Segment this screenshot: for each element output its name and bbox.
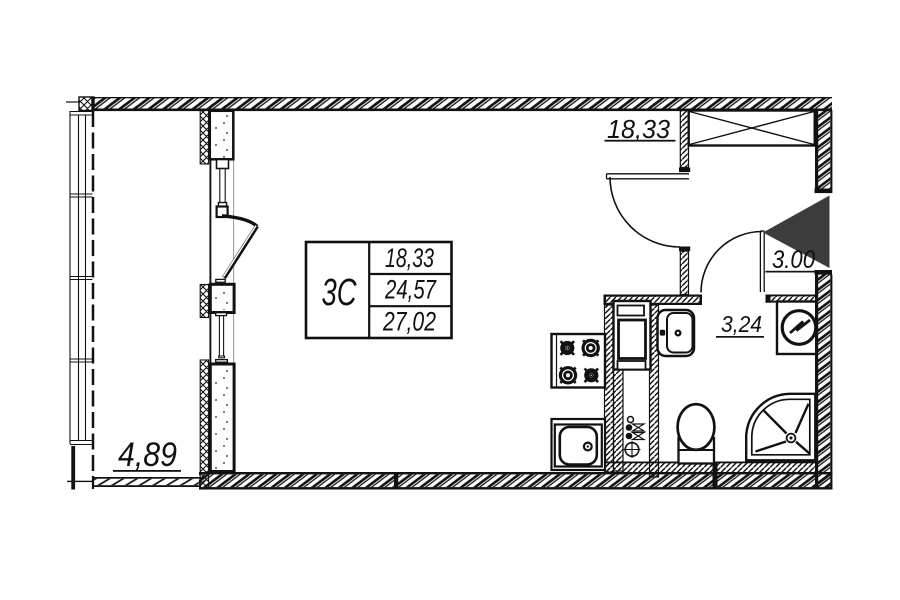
svg-text:4,89: 4,89 — [118, 436, 177, 474]
svg-text:24,57: 24,57 — [384, 275, 436, 305]
svg-text:3.00: 3.00 — [772, 246, 815, 274]
svg-text:3С: 3С — [322, 272, 357, 314]
svg-text:3,24: 3,24 — [721, 311, 762, 337]
svg-text:27,02: 27,02 — [382, 307, 436, 337]
svg-text:18,33: 18,33 — [607, 114, 671, 144]
svg-text:18,33: 18,33 — [385, 243, 434, 273]
